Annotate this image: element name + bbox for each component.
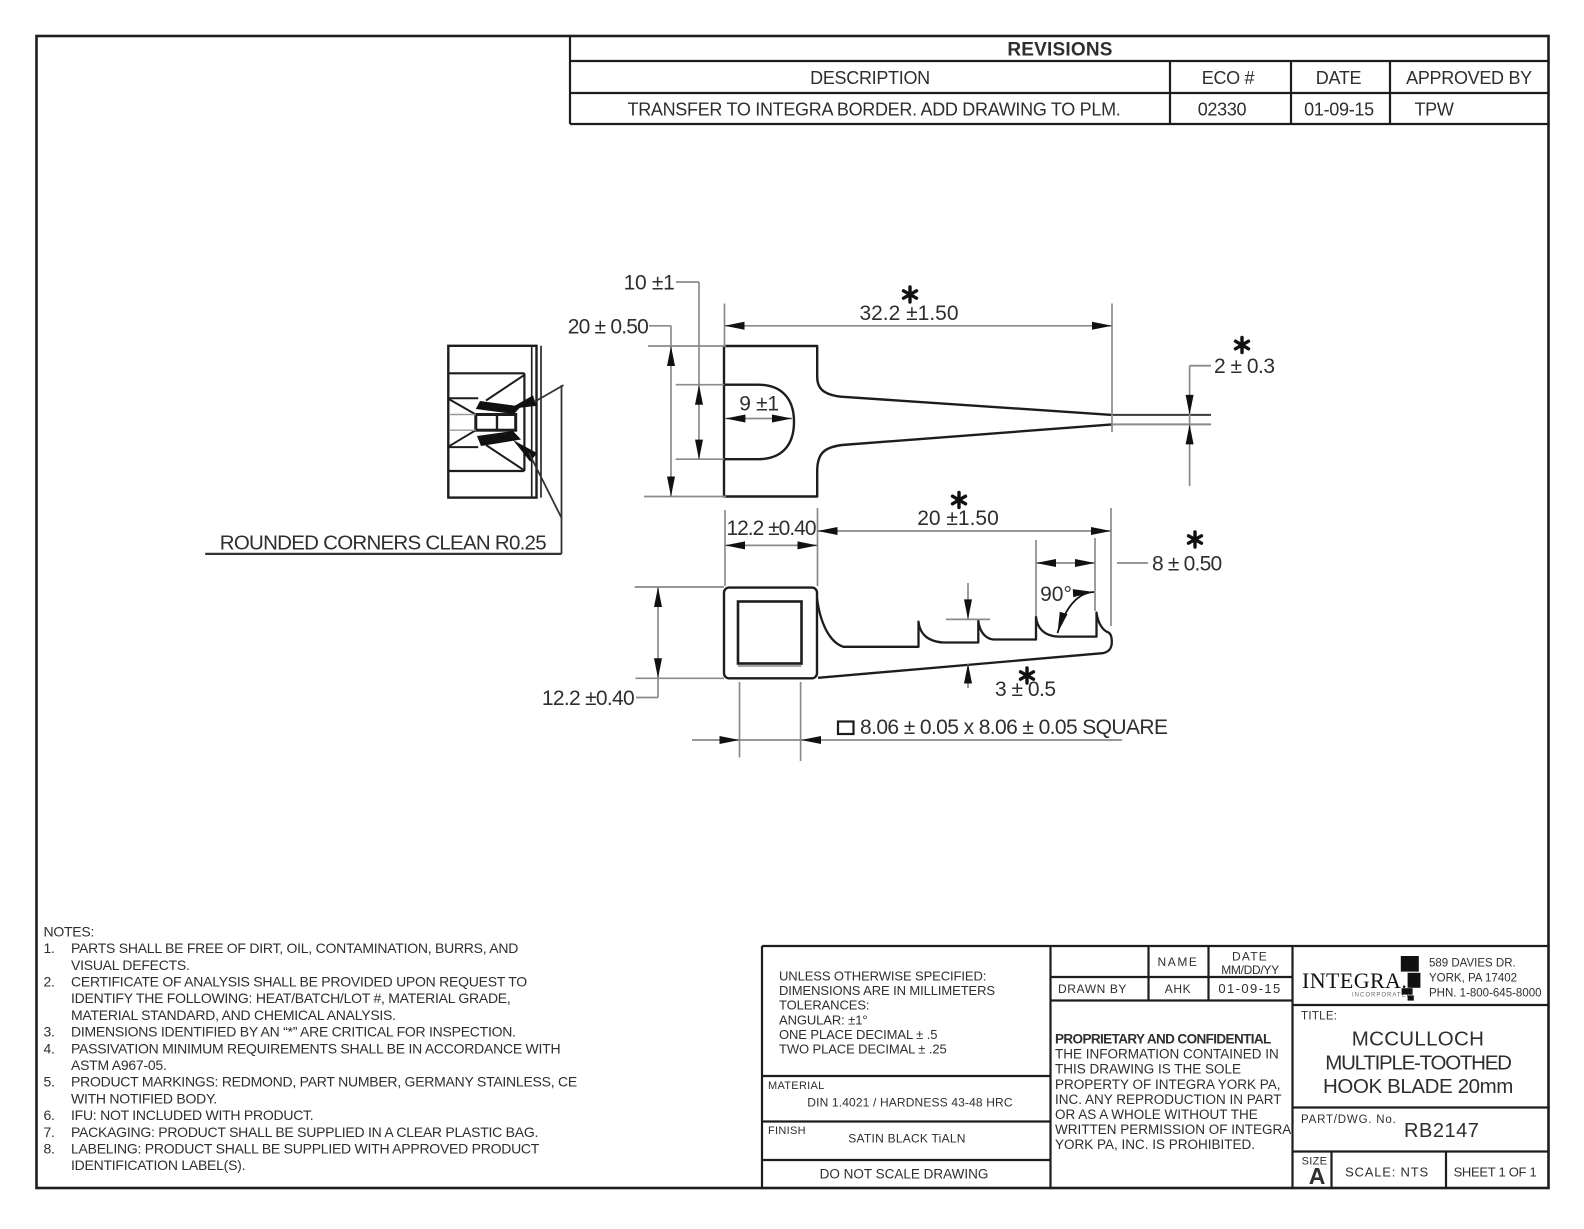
- svg-text:ASTM A967-05.: ASTM A967-05.: [71, 1057, 167, 1073]
- svg-text:ECO #: ECO #: [1202, 68, 1255, 88]
- svg-text:CERTIFICATE OF ANALYSIS SHALL: CERTIFICATE OF ANALYSIS SHALL BE PROVIDE…: [71, 974, 527, 990]
- svg-text:20 ±1.50: 20 ±1.50: [917, 507, 999, 530]
- svg-text:PASSIVATION MINIMUM REQUIREMEN: PASSIVATION MINIMUM REQUIREMENTS SHALL B…: [71, 1040, 560, 1056]
- svg-text:02330: 02330: [1198, 100, 1247, 120]
- svg-text:2 ± 0.3: 2 ± 0.3: [1214, 355, 1275, 378]
- svg-text:PROPERTY OF INTEGRA YORK PA,: PROPERTY OF INTEGRA YORK PA,: [1055, 1077, 1281, 1092]
- svg-text:IFU: NOT INCLUDED WITH PRODUCT: IFU: NOT INCLUDED WITH PRODUCT.: [71, 1107, 313, 1123]
- svg-text:01-09-15: 01-09-15: [1218, 981, 1281, 996]
- svg-text:TRANSFER TO INTEGRA BORDER. AD: TRANSFER TO INTEGRA BORDER. ADD DRAWING …: [628, 100, 1121, 120]
- svg-text:DIMENSIONS IDENTIFIED BY AN “*: DIMENSIONS IDENTIFIED BY AN “*” ARE CRIT…: [71, 1024, 516, 1040]
- svg-text:9 ±1: 9 ±1: [739, 393, 779, 416]
- svg-text:MATERIAL: MATERIAL: [768, 1080, 825, 1092]
- svg-text:WITH NOTIFIED BODY.: WITH NOTIFIED BODY.: [71, 1090, 217, 1106]
- svg-text:TPW: TPW: [1414, 100, 1453, 120]
- svg-text:589 DAVIES DR.: 589 DAVIES DR.: [1429, 958, 1516, 970]
- svg-text:PRODUCT MARKINGS: REDMOND, PAR: PRODUCT MARKINGS: REDMOND, PART NUMBER, …: [71, 1074, 577, 1090]
- svg-text:APPROVED BY: APPROVED BY: [1406, 68, 1532, 88]
- svg-text:7.: 7.: [44, 1124, 55, 1140]
- svg-text:RB2147: RB2147: [1404, 1120, 1479, 1142]
- svg-text:TITLE:: TITLE:: [1301, 1011, 1337, 1023]
- svg-text:DATE: DATE: [1232, 950, 1268, 964]
- svg-text:DRAWN BY: DRAWN BY: [1058, 982, 1127, 996]
- svg-text:TWO PLACE DECIMAL ± .25: TWO PLACE DECIMAL ± .25: [779, 1042, 947, 1057]
- svg-text:SCALE: NTS: SCALE: NTS: [1345, 1165, 1429, 1180]
- svg-text:8.: 8.: [44, 1141, 55, 1157]
- svg-text:INTEGRA.: INTEGRA.: [1302, 968, 1407, 993]
- svg-text:MM/DD/YY: MM/DD/YY: [1221, 963, 1279, 977]
- svg-text:UNLESS OTHERWISE SPECIFIED:: UNLESS OTHERWISE SPECIFIED:: [779, 969, 986, 984]
- svg-text:WRITTEN PERMISSION OF INTEGRA: WRITTEN PERMISSION OF INTEGRA: [1055, 1122, 1291, 1137]
- svg-text:5.: 5.: [44, 1074, 55, 1090]
- svg-text:LABELING: PRODUCT SHALL BE SUP: LABELING: PRODUCT SHALL BE SUPPLIED WITH…: [71, 1141, 540, 1157]
- svg-text:20 ± 0.50: 20 ± 0.50: [568, 316, 648, 339]
- svg-text:SATIN BLACK TiALN: SATIN BLACK TiALN: [848, 1132, 965, 1146]
- svg-text:DO NOT SCALE DRAWING: DO NOT SCALE DRAWING: [820, 1167, 989, 1182]
- svg-text:THIS DRAWING IS THE SOLE: THIS DRAWING IS THE SOLE: [1055, 1062, 1241, 1077]
- svg-text:IDENTIFY THE FOLLOWING: HEAT/B: IDENTIFY THE FOLLOWING: HEAT/BATCH/LOT #…: [71, 990, 511, 1006]
- svg-text:12.2 ±0.40: 12.2 ±0.40: [542, 687, 634, 710]
- svg-text:4.: 4.: [44, 1040, 55, 1056]
- svg-text:SHEET 1 OF 1: SHEET 1 OF 1: [1454, 1165, 1537, 1180]
- svg-text:MATERIAL STANDARD, AND CHEMICA: MATERIAL STANDARD, AND CHEMICAL ANALYSIS…: [71, 1007, 396, 1023]
- svg-text:NAME: NAME: [1157, 955, 1198, 969]
- svg-text:THE INFORMATION CONTAINED IN: THE INFORMATION CONTAINED IN: [1055, 1047, 1279, 1062]
- svg-text:OR AS A WHOLE WITHOUT THE: OR AS A WHOLE WITHOUT THE: [1055, 1107, 1258, 1122]
- svg-text:1.: 1.: [44, 940, 55, 956]
- svg-text:10 ±1: 10 ±1: [624, 272, 675, 295]
- svg-text:ONE PLACE DECIMAL ± .5: ONE PLACE DECIMAL ± .5: [779, 1027, 937, 1042]
- svg-text:A: A: [1309, 1163, 1326, 1189]
- svg-text:2.: 2.: [44, 974, 55, 990]
- svg-text:DESCRIPTION: DESCRIPTION: [810, 68, 930, 88]
- svg-text:PARTS SHALL BE FREE OF DIRT, O: PARTS SHALL BE FREE OF DIRT, OIL, CONTAM…: [71, 940, 518, 956]
- svg-text:INC. ANY REPRODUCTION IN PART: INC. ANY REPRODUCTION IN PART: [1055, 1092, 1282, 1107]
- svg-text:TOLERANCES:: TOLERANCES:: [779, 998, 869, 1013]
- svg-text:DIMENSIONS ARE IN MILLIMETERS: DIMENSIONS ARE IN MILLIMETERS: [779, 983, 995, 998]
- svg-text:VISUAL DEFECTS.: VISUAL DEFECTS.: [71, 957, 190, 973]
- svg-text:DATE: DATE: [1316, 68, 1362, 88]
- svg-text:12.2 ±0.40: 12.2 ±0.40: [726, 517, 815, 540]
- svg-text:MULTIPLE-TOOTHED: MULTIPLE-TOOTHED: [1325, 1051, 1511, 1074]
- svg-text:REVISIONS: REVISIONS: [1007, 40, 1112, 61]
- svg-text:DIN 1.4021 / HARDNESS 43-48 HR: DIN 1.4021 / HARDNESS 43-48 HRC: [807, 1096, 1013, 1110]
- svg-text:8 ± 0.50: 8 ± 0.50: [1152, 553, 1221, 576]
- svg-text:AHK: AHK: [1165, 982, 1191, 996]
- svg-text:YORK PA, INC. IS PROHIBITED.: YORK PA, INC. IS PROHIBITED.: [1055, 1137, 1255, 1152]
- svg-text:ROUNDED CORNERS CLEAN R0.25: ROUNDED CORNERS CLEAN R0.25: [220, 532, 546, 555]
- svg-text:PART/DWG. No.: PART/DWG. No.: [1301, 1114, 1397, 1126]
- svg-text:3.: 3.: [44, 1024, 55, 1040]
- svg-text:FINISH: FINISH: [768, 1125, 806, 1137]
- svg-text:HOOK BLADE 20mm: HOOK BLADE 20mm: [1323, 1075, 1513, 1098]
- svg-text:NOTES:: NOTES:: [44, 923, 95, 939]
- svg-text:01-09-15: 01-09-15: [1304, 100, 1374, 120]
- svg-text:32.2 ±1.50: 32.2 ±1.50: [859, 302, 958, 325]
- svg-text:PROPRIETARY AND CONFIDENTIAL: PROPRIETARY AND CONFIDENTIAL: [1055, 1032, 1271, 1047]
- svg-text:90°: 90°: [1040, 583, 1072, 606]
- svg-text:PACKAGING: PRODUCT SHALL BE S: PACKAGING: PRODUCT SHALL BE SUPPLIED IN …: [71, 1124, 538, 1140]
- svg-text:8.06 ± 0.05 x 8.06 ± 0.05 SQUA: 8.06 ± 0.05 x 8.06 ± 0.05 SQUARE: [860, 716, 1168, 739]
- svg-text:IDENTIFICATION LABEL(S).: IDENTIFICATION LABEL(S).: [71, 1157, 245, 1173]
- svg-text:ANGULAR: ±1°: ANGULAR: ±1°: [779, 1012, 867, 1027]
- svg-text:3 ± 0.5: 3 ± 0.5: [995, 678, 1056, 701]
- svg-text:6.: 6.: [44, 1107, 55, 1123]
- svg-text:YORK, PA 17402: YORK, PA 17402: [1429, 972, 1517, 984]
- svg-text:PHN. 1-800-645-8000: PHN. 1-800-645-8000: [1429, 987, 1542, 999]
- svg-text:MCCULLOCH: MCCULLOCH: [1352, 1028, 1485, 1051]
